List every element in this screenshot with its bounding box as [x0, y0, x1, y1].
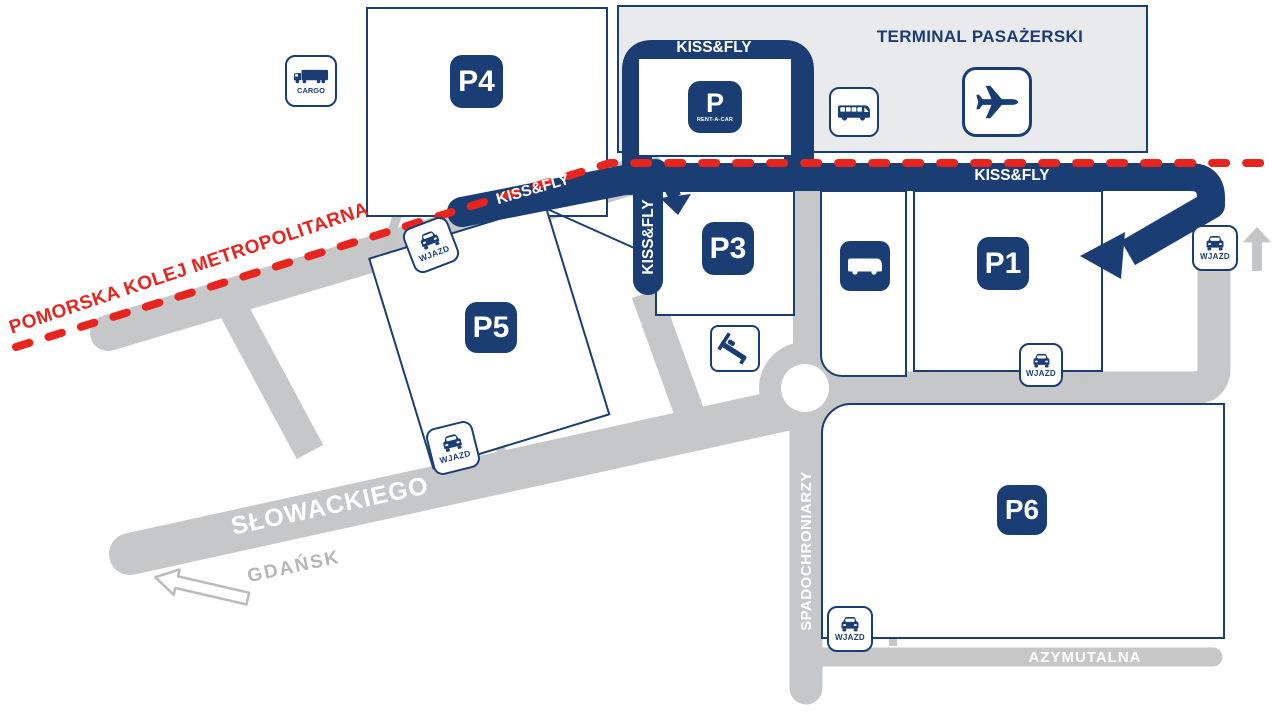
parking-p6-badge: P6	[997, 485, 1047, 535]
parking-p4-badge: P4	[450, 55, 503, 108]
bus-icon	[837, 103, 871, 122]
gdansk-label: GDAŃSK	[246, 550, 329, 588]
parking-p4-label: P4	[458, 65, 495, 99]
wjazd-badge-p6: WJAZD	[827, 606, 873, 652]
rentacar-badge: P RENT-A-CAR	[688, 81, 742, 133]
rail-label: POMORSKA KOLEJ METROPOLITARNA	[7, 199, 372, 340]
parking-p6-label: P6	[1005, 494, 1039, 526]
parking-p5-label: P5	[473, 311, 510, 345]
wjazd-badge-east: WJAZD	[1192, 225, 1238, 271]
truck-icon	[293, 67, 329, 84]
wjazd-label: WJAZD	[835, 633, 865, 642]
terminal-bus-box	[829, 87, 879, 137]
spadochroniarzy-label: SPADOCHRONIARZY	[798, 456, 814, 646]
gdansk-arrow	[152, 565, 250, 612]
hotel-box	[710, 325, 760, 372]
rentacar-p-label: P	[706, 91, 724, 115]
wjazd-label: WJAZD	[1026, 369, 1056, 378]
bus-stop-icon	[847, 256, 883, 276]
parking-p3-label: P3	[710, 232, 747, 266]
up-arrow-east	[1243, 227, 1272, 271]
rentacar-label: RENT-A-CAR	[697, 118, 733, 123]
terminal-label: TERMINAL PASAŻERSKI	[850, 27, 1110, 47]
car-icon	[1031, 353, 1052, 368]
parking-p1-label: P1	[985, 247, 1022, 281]
kissfly-label-band: KISS&FLY	[957, 167, 1067, 185]
parking-p1-badge: P1	[977, 237, 1029, 290]
road-left-branch	[230, 303, 310, 452]
car-icon	[1204, 235, 1226, 251]
wjazd-badge-p1: WJAZD	[1019, 343, 1063, 387]
airport-parking-map: P4 P3 P1 P5 P6 P RENT-A-CAR CARGO WJAZD …	[0, 0, 1280, 712]
rentacar-box: P RENT-A-CAR	[637, 57, 793, 157]
wjazd-label: WJAZD	[1200, 252, 1230, 261]
cargo-badge: CARGO	[285, 55, 337, 107]
kissfly-label-vertical: KISS&FLY	[640, 182, 656, 292]
terminal-plane-box	[962, 67, 1032, 137]
kissfly-label-loop: KISS&FLY	[659, 39, 769, 57]
roundabout-island	[781, 364, 829, 412]
azymutalna-label: AZYMUTALNA	[1005, 649, 1165, 666]
slowackiego-label: SŁOWACKIEGO	[219, 469, 440, 543]
bus-stop-badge	[840, 241, 890, 291]
cargo-label: CARGO	[297, 86, 325, 95]
parking-p3-badge: P3	[702, 222, 754, 275]
hotel-bed-icon	[714, 328, 756, 368]
parking-p5-badge: P5	[465, 302, 517, 353]
plane-icon	[974, 79, 1020, 125]
car-icon	[839, 616, 861, 632]
